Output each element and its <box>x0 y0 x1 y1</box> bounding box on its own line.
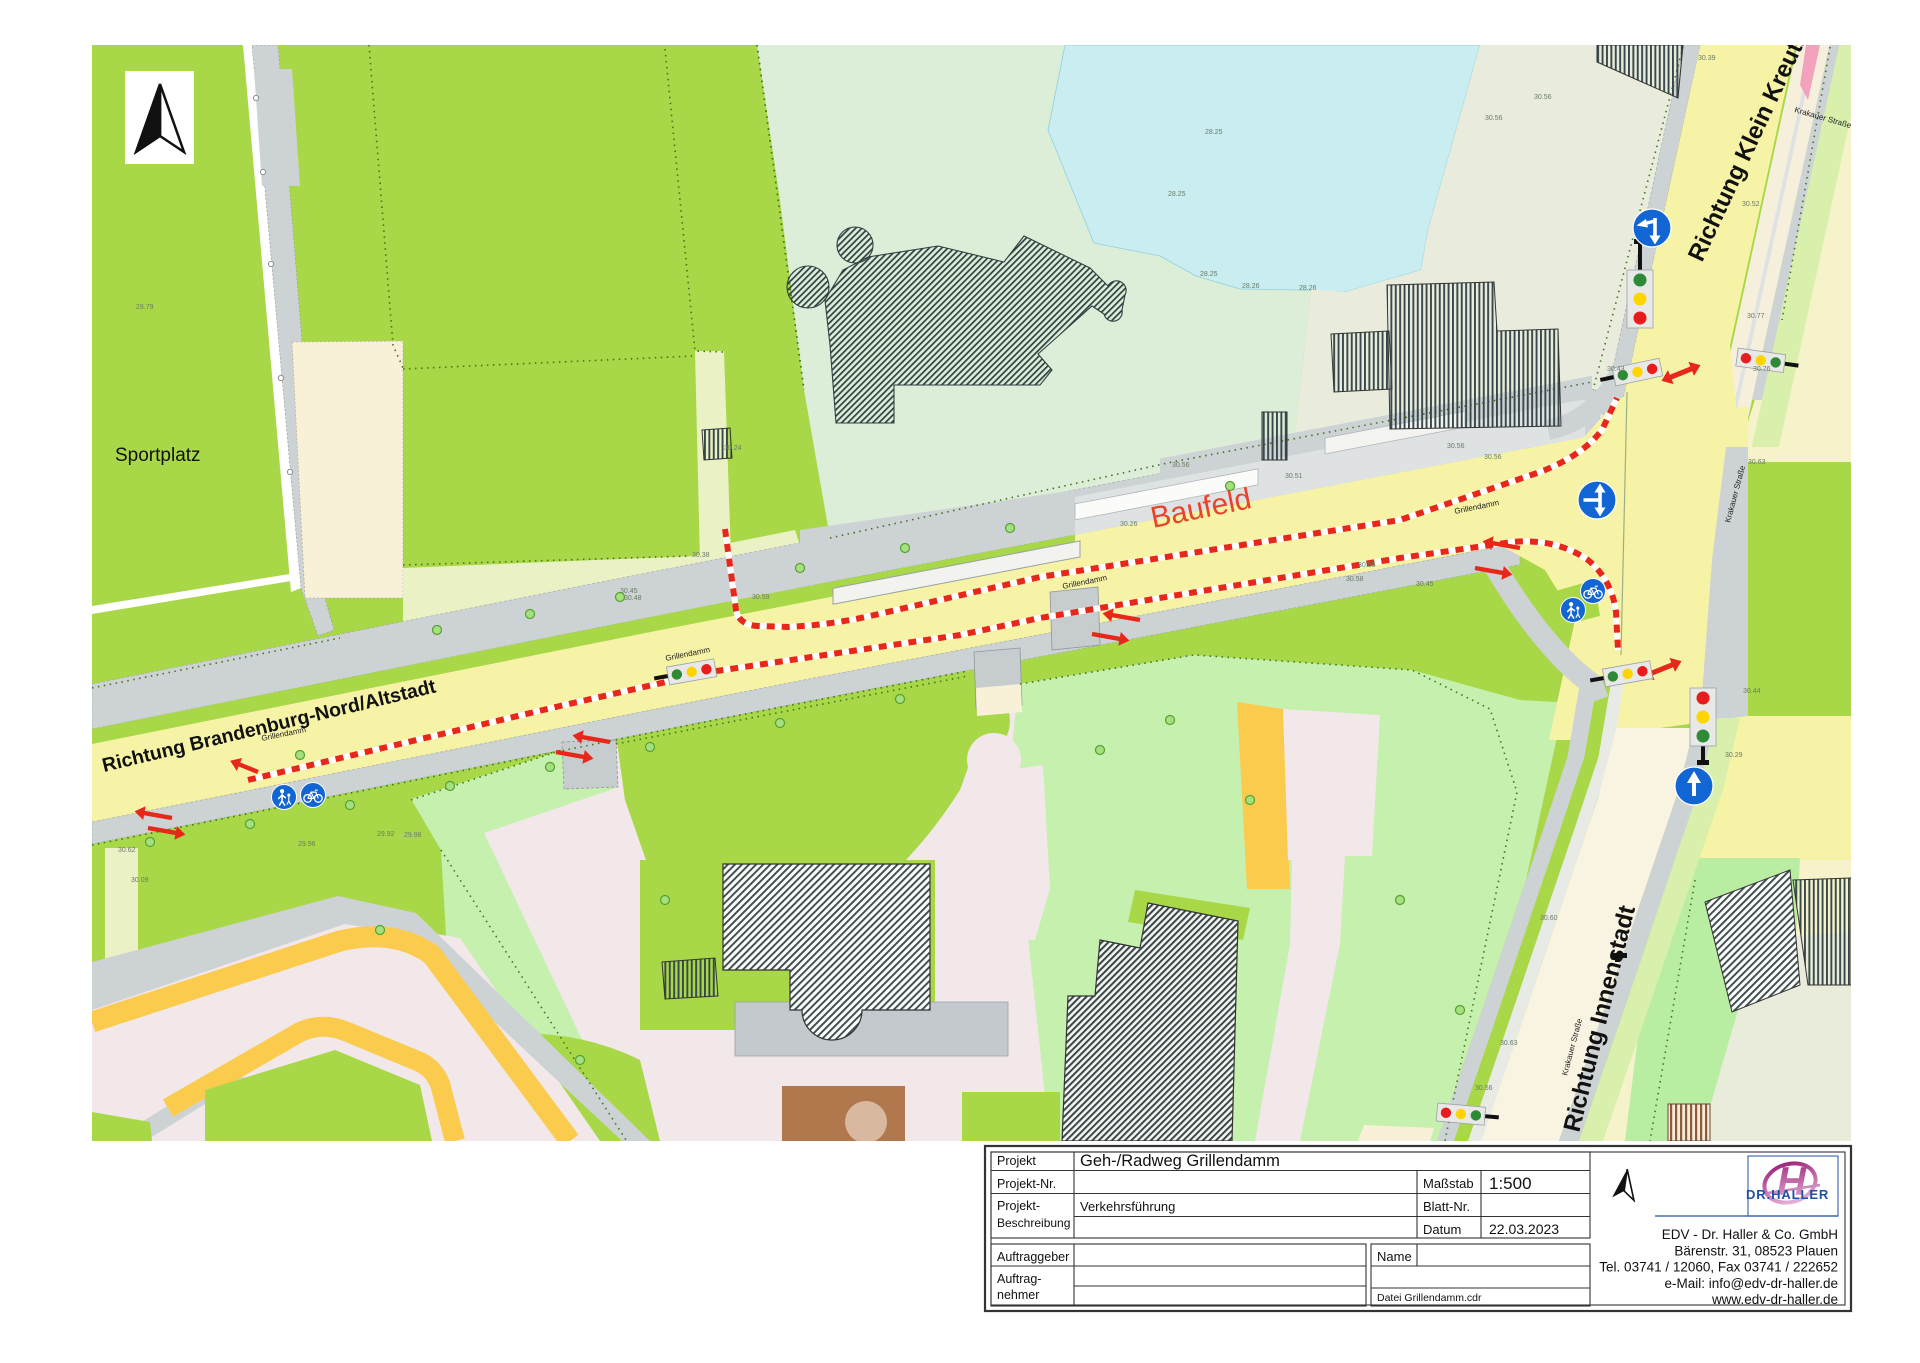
svg-text:Verkehrsführung: Verkehrsführung <box>1080 1199 1175 1214</box>
svg-text:30.63: 30.63 <box>1500 1040 1518 1047</box>
svg-text:30.26: 30.26 <box>1120 521 1138 528</box>
svg-text:30.56: 30.56 <box>1484 454 1502 461</box>
svg-text:Projekt-Nr.: Projekt-Nr. <box>997 1177 1056 1191</box>
svg-text:30.55: 30.55 <box>1358 562 1376 569</box>
svg-text:30.45: 30.45 <box>620 588 638 595</box>
svg-text:30.60: 30.60 <box>1540 915 1558 922</box>
svg-text:30.56: 30.56 <box>1485 115 1503 122</box>
svg-text:30.63: 30.63 <box>1748 459 1766 466</box>
svg-text:30.38: 30.38 <box>692 552 710 559</box>
svg-text:30.48: 30.48 <box>624 595 642 602</box>
svg-text:30.56: 30.56 <box>1534 94 1552 101</box>
svg-text:30.39: 30.39 <box>1698 55 1716 62</box>
svg-text:29.98: 29.98 <box>404 832 422 839</box>
svg-text:Datei Grillendamm.cdr: Datei Grillendamm.cdr <box>1377 1292 1482 1304</box>
svg-text:30.58: 30.58 <box>1346 576 1364 583</box>
svg-text:28.25: 28.25 <box>1200 271 1218 278</box>
svg-text:22.03.2023: 22.03.2023 <box>1489 1221 1559 1237</box>
svg-text:Bärenstr. 31, 08523 Plauen: Bärenstr. 31, 08523 Plauen <box>1674 1243 1838 1258</box>
svg-text:1:500: 1:500 <box>1489 1174 1532 1193</box>
svg-text:28.26: 28.26 <box>1242 283 1260 290</box>
svg-text:30.44: 30.44 <box>1743 688 1761 695</box>
svg-text:Auftraggeber: Auftraggeber <box>997 1250 1069 1264</box>
svg-text:28.25: 28.25 <box>1168 191 1186 198</box>
svg-text:30.24: 30.24 <box>724 445 742 452</box>
svg-text:e-Mail: info@edv-dr-haller.de: e-Mail: info@edv-dr-haller.de <box>1664 1276 1838 1291</box>
svg-text:30.76: 30.76 <box>1753 366 1771 373</box>
svg-text:Geh-/Radweg Grillendamm: Geh-/Radweg Grillendamm <box>1080 1152 1280 1170</box>
svg-text:Projekt: Projekt <box>997 1154 1036 1168</box>
svg-text:30.29: 30.29 <box>1725 752 1743 759</box>
svg-text:Datum: Datum <box>1423 1222 1461 1237</box>
svg-text:Tel. 03741 / 12060, Fax 03741: Tel. 03741 / 12060, Fax 03741 / 222652 <box>1599 1260 1838 1275</box>
svg-text:nehmer: nehmer <box>997 1288 1039 1302</box>
svg-text:Sportplatz: Sportplatz <box>115 445 201 466</box>
svg-text:Maßstab: Maßstab <box>1423 1176 1474 1191</box>
svg-text:30.56: 30.56 <box>1475 1085 1493 1092</box>
svg-text:29.96: 29.96 <box>298 841 316 848</box>
svg-text:28.79: 28.79 <box>136 304 154 311</box>
svg-text:28.25: 28.25 <box>1205 129 1223 136</box>
svg-text:30.51: 30.51 <box>1285 473 1303 480</box>
svg-text:30.56: 30.56 <box>1172 462 1190 469</box>
svg-text:Name: Name <box>1377 1249 1412 1264</box>
svg-text:30.45: 30.45 <box>1416 581 1434 588</box>
svg-text:Auftrag-: Auftrag- <box>997 1272 1041 1286</box>
svg-text:28.26: 28.26 <box>1299 285 1317 292</box>
svg-text:30.77: 30.77 <box>1747 313 1765 320</box>
svg-text:30.62: 30.62 <box>118 847 136 854</box>
svg-text:30.56: 30.56 <box>1447 443 1465 450</box>
svg-text:30.52: 30.52 <box>1742 201 1760 208</box>
svg-text:DR.HALLER: DR.HALLER <box>1746 1187 1829 1202</box>
svg-text:29.92: 29.92 <box>377 831 395 838</box>
svg-text:30.59: 30.59 <box>752 594 770 601</box>
svg-text:Beschreibung: Beschreibung <box>997 1216 1070 1230</box>
svg-text:Projekt-: Projekt- <box>997 1199 1040 1213</box>
svg-text:30.43: 30.43 <box>1607 366 1625 373</box>
svg-text:Blatt-Nr.: Blatt-Nr. <box>1423 1199 1470 1214</box>
svg-text:EDV - Dr. Haller & Co. GmbH: EDV - Dr. Haller & Co. GmbH <box>1662 1227 1838 1242</box>
svg-text:30.09: 30.09 <box>131 877 149 884</box>
svg-text:www.edv-dr-haller.de: www.edv-dr-haller.de <box>1711 1292 1838 1307</box>
